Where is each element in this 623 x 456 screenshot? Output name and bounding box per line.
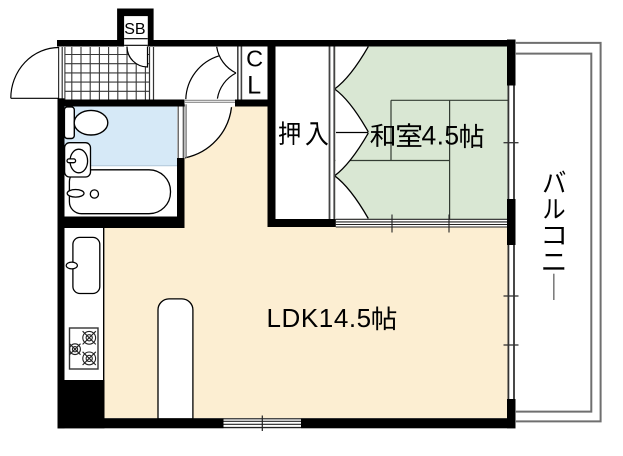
svg-text:SB: SB [124, 21, 145, 38]
svg-text:C: C [246, 45, 263, 71]
svg-text:L: L [247, 72, 261, 100]
svg-text:LDK14.5: LDK14.5 [267, 303, 372, 333]
svg-text:4.5: 4.5 [422, 121, 460, 151]
